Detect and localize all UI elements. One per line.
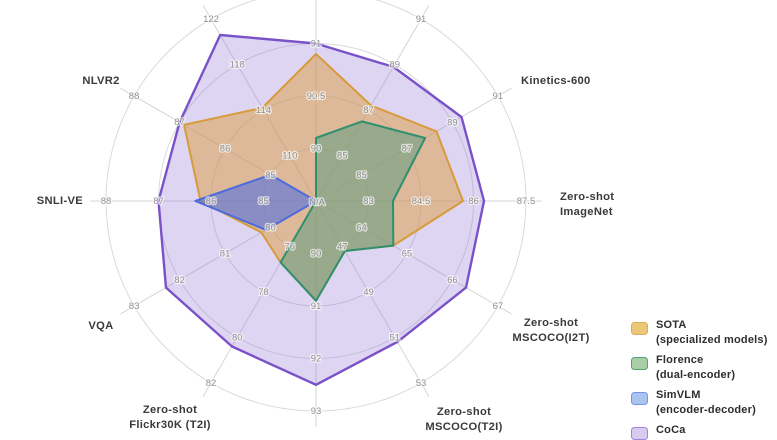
tick-label-kinetics-600-85: 85 (356, 170, 367, 181)
legend-item-coca: CoCa (631, 423, 686, 440)
legend-label-line2: (dual-encoder) (656, 368, 735, 383)
legend-label-line2: (specialized models) (656, 333, 768, 348)
tick-label-zero-shot-mscoco-t2i-47: 47 (337, 242, 348, 253)
legend-swatch-sota (631, 322, 648, 335)
tick-label-zero-shot-imagenet-86: 86 (468, 196, 479, 207)
tick-label-nlvr2-85: 85 (265, 170, 276, 181)
legend-item-sota: SOTA(specialized models) (631, 318, 768, 347)
tick-label-zero-shot-flickr30k-i2t-93: 93 (311, 406, 322, 417)
axis-label-zero-shot-imagenet: Zero-shot (560, 191, 614, 203)
tick-label-vqa-83: 83 (129, 301, 140, 312)
tick-label-snli-ve-87: 87 (153, 196, 164, 207)
tick-label-zero-shot-flickr30k-t2i-80: 80 (232, 332, 243, 343)
tick-label-vqa-81: 81 (220, 249, 231, 260)
tick-label-zero-shot-flickr30k-i2t-91: 91 (311, 301, 322, 312)
tick-label-kinetics-400-89: 89 (390, 60, 401, 71)
tick-label-snli-ve-88: 88 (101, 196, 112, 207)
legend-label-line1: SimVLM (656, 388, 756, 403)
tick-label-kinetics-600-91: 91 (493, 91, 504, 102)
axis-label-vqa: VQA (88, 320, 113, 332)
legend-swatch-simvlm (631, 392, 648, 405)
tick-label-kinetics-400-87: 87 (363, 105, 374, 116)
tick-label-zero-shot-imagenet-87.5: 87.5 (517, 196, 536, 207)
center-na-label: N/A (309, 197, 326, 208)
tick-label-imagenet-90.5: 90.5 (307, 91, 326, 102)
legend-label-line1: CoCa (656, 423, 686, 438)
tick-label-zero-shot-mscoco-t2i-51: 51 (390, 332, 401, 343)
legend-label-line2: (encoder-decoder) (656, 403, 756, 418)
tick-label-zero-shot-mscoco-i2t-64: 64 (356, 222, 367, 233)
tick-label-zero-shot-mscoco-t2i-53: 53 (416, 378, 427, 389)
axis-label-zero-shot-mscoco-i2t: Zero-shot (524, 317, 578, 329)
axis-label-zero-shot-imagenet: ImageNet (560, 206, 613, 218)
axis-label-nlvr2: NLVR2 (82, 75, 119, 87)
tick-label-snli-ve-85: 85 (258, 196, 269, 207)
tick-label-vqa-80: 80 (265, 222, 276, 233)
tick-label-zero-shot-mscoco-i2t-67: 67 (493, 301, 504, 312)
axis-label-kinetics-600: Kinetics-600 (521, 75, 591, 87)
axis-label-zero-shot-flickr30k-t2i: Zero-shot (143, 404, 197, 416)
tick-label-zero-shot-flickr30k-t2i-82: 82 (206, 378, 217, 389)
axis-label-zero-shot-flickr30k-t2i: Flickr30K (T2I) (129, 419, 211, 431)
tick-label-zero-shot-mscoco-i2t-65: 65 (402, 249, 413, 260)
legend-swatch-coca (631, 427, 648, 440)
tick-label-nocaps-114: 114 (256, 105, 271, 116)
tick-label-vqa-82: 82 (174, 275, 185, 286)
tick-label-imagenet-90: 90 (311, 144, 322, 155)
tick-label-snli-ve-86: 86 (206, 196, 217, 207)
tick-label-zero-shot-imagenet-83: 83 (363, 196, 374, 207)
legend-label-line1: Florence (656, 353, 735, 368)
radar-figure: 9090.59185878991858789918384.58687.56465… (0, 0, 777, 437)
tick-label-zero-shot-flickr30k-i2t-92: 92 (311, 354, 322, 365)
tick-label-nlvr2-87: 87 (174, 117, 185, 128)
tick-label-zero-shot-mscoco-t2i-49: 49 (363, 287, 374, 298)
tick-label-zero-shot-flickr30k-i2t-90: 90 (311, 249, 322, 260)
tick-label-nocaps-118: 118 (230, 60, 245, 71)
tick-label-zero-shot-mscoco-i2t-66: 66 (447, 275, 458, 286)
legend: SOTA(specialized models)Florence(dual-en… (631, 318, 777, 437)
legend-item-simvlm: SimVLM(encoder-decoder) (631, 388, 756, 417)
axis-label-zero-shot-mscoco-i2t: MSCOCO(I2T) (512, 332, 589, 344)
tick-label-kinetics-600-89: 89 (447, 117, 458, 128)
tick-label-zero-shot-flickr30k-t2i-76: 76 (285, 242, 296, 253)
legend-label-line1: SOTA (656, 318, 768, 333)
tick-label-zero-shot-flickr30k-t2i-78: 78 (258, 287, 269, 298)
legend-swatch-florence (631, 357, 648, 370)
axis-label-zero-shot-mscoco-t2i: MSCOCO(T2I) (425, 421, 502, 433)
tick-label-kinetics-400-91: 91 (416, 14, 427, 25)
tick-label-nocaps-110: 110 (282, 151, 297, 162)
tick-label-nlvr2-88: 88 (129, 91, 140, 102)
legend-item-florence: Florence(dual-encoder) (631, 353, 735, 382)
tick-label-imagenet-91: 91 (311, 39, 322, 50)
axis-label-zero-shot-mscoco-t2i: Zero-shot (437, 406, 491, 418)
tick-label-zero-shot-imagenet-84.5: 84.5 (412, 196, 431, 207)
tick-label-kinetics-600-87: 87 (402, 144, 413, 155)
tick-label-nlvr2-86: 86 (220, 144, 231, 155)
tick-label-kinetics-400-85: 85 (337, 151, 348, 162)
axis-label-snli-ve: SNLI-VE (37, 195, 83, 207)
tick-label-nocaps-122: 122 (203, 14, 219, 25)
